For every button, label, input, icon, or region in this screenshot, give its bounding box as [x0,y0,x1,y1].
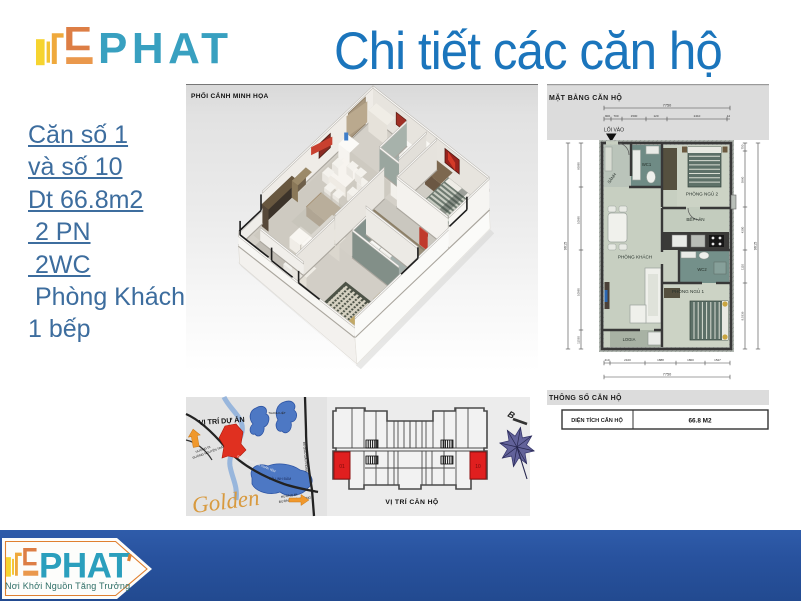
svg-text:3960: 3960 [741,176,745,183]
svg-text:10985: 10985 [577,216,581,224]
svg-text:01: 01 [339,464,345,470]
svg-text:2410: 2410 [694,114,701,118]
svg-text:WC2: WC2 [697,267,707,272]
svg-text:BẾP+ĂN: BẾP+ĂN [686,216,704,222]
svg-text:PHÒNG NGỦ 2: PHÒNG NGỦ 2 [686,191,719,197]
svg-text:120: 120 [653,114,658,118]
svg-text:65885: 65885 [577,162,581,170]
svg-text:10: 10 [475,464,481,470]
svg-text:WC1: WC1 [642,162,652,167]
svg-text:8,5336: 8,5336 [741,311,745,320]
svg-text:700: 700 [613,114,618,118]
svg-text:7750: 7750 [663,104,671,108]
svg-text:1110: 1110 [741,264,745,270]
svg-text:1527: 1527 [714,358,721,362]
svg-text:1500: 1500 [631,114,638,118]
svg-text:LOGIA: LOGIA [623,337,636,342]
svg-text:1888: 1888 [657,358,664,362]
svg-text:11530: 11530 [577,336,581,344]
svg-text:DIỆN TÍCH CĂN HỘ: DIỆN TÍCH CĂN HỘ [571,416,623,424]
svg-text:900: 900 [605,114,610,118]
svg-text:VỊ TRÍ CĂN HỘ: VỊ TRÍ CĂN HỘ [385,497,438,506]
svg-text:66.8 M2: 66.8 M2 [688,418,712,425]
svg-text:4200: 4200 [741,226,745,233]
svg-text:750: 750 [741,144,745,149]
svg-text:PHAT: PHAT [39,547,130,586]
svg-text:2100: 2100 [624,358,631,362]
svg-text:THANH LIỆT: THANH LIỆT [268,410,286,415]
svg-text:9615: 9615 [754,242,758,250]
svg-text:7750: 7750 [663,373,671,377]
svg-text:9615: 9615 [564,242,568,250]
svg-text:MẶT BẰNG CĂN HỘ: MẶT BẰNG CĂN HỘ [549,93,622,102]
svg-text:PHÒNG KHÁCH: PHÒNG KHÁCH [618,254,652,260]
svg-text:Nơi Khởi Nguồn Tăng Trưởng: Nơi Khởi Nguồn Tăng Trưởng [5,581,130,591]
svg-text:1800: 1800 [687,358,694,362]
svg-text:410: 410 [604,358,609,362]
svg-text:10985: 10985 [577,288,581,296]
svg-text:LỐI VÀO: LỐI VÀO [604,127,624,134]
svg-text:12: 12 [727,114,731,118]
svg-text:PHÒNG NGỦ 1: PHÒNG NGỦ 1 [672,288,705,294]
